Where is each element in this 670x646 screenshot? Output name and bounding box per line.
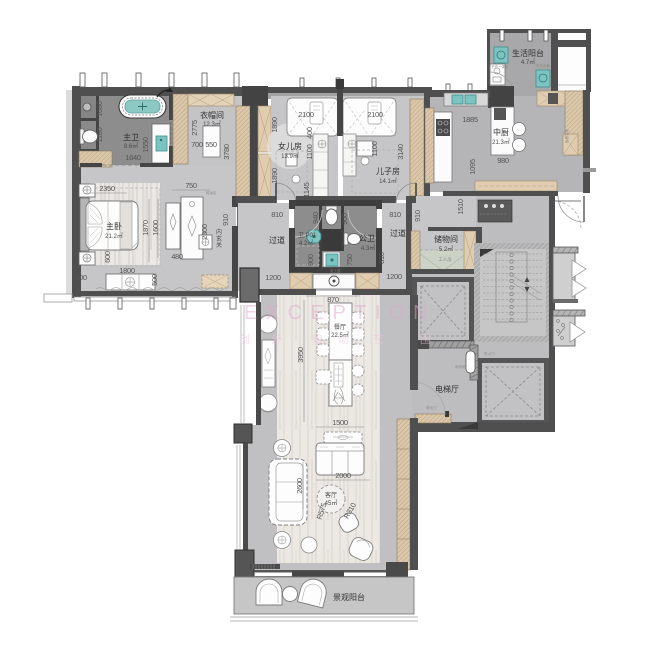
svg-text:2775: 2775 [190, 120, 199, 136]
svg-text:1890: 1890 [270, 168, 279, 184]
svg-text:儿子房: 儿子房 [376, 166, 400, 176]
svg-text:过道: 过道 [269, 235, 285, 245]
svg-text:810: 810 [271, 210, 283, 219]
svg-text:900: 900 [340, 213, 349, 225]
svg-text:4.7㎡: 4.7㎡ [521, 58, 535, 66]
svg-text:关: 关 [216, 241, 222, 249]
svg-text:810: 810 [377, 252, 386, 264]
svg-text:1200: 1200 [386, 272, 402, 281]
svg-text:生活阳台: 生活阳台 [512, 48, 544, 58]
svg-text:1640: 1640 [125, 153, 141, 162]
svg-text:980: 980 [497, 156, 509, 165]
svg-text:480: 480 [171, 252, 183, 261]
svg-text:创: 创 [239, 333, 250, 346]
svg-text:景观阳台: 景观阳台 [333, 592, 365, 602]
svg-text:1100: 1100 [370, 141, 379, 156]
svg-text:琅: 琅 [312, 332, 323, 346]
svg-text:干衣一体机: 干衣一体机 [491, 64, 509, 69]
svg-text:艺: 艺 [373, 333, 384, 346]
svg-text:衣帽间: 衣帽间 [200, 110, 224, 120]
svg-text:1145: 1145 [302, 182, 311, 197]
svg-text:1600: 1600 [151, 220, 160, 236]
svg-text:870: 870 [327, 295, 339, 304]
svg-text:14.1㎡: 14.1㎡ [379, 177, 397, 185]
svg-text:2600: 2600 [295, 478, 304, 494]
svg-text:主卧: 主卧 [106, 221, 122, 231]
svg-text:500: 500 [75, 273, 87, 282]
svg-text:公卫: 公卫 [359, 234, 375, 243]
svg-text:600: 600 [103, 251, 112, 263]
svg-text:2100: 2100 [298, 110, 314, 119]
svg-text:1100: 1100 [305, 144, 314, 159]
svg-text:1885: 1885 [462, 115, 478, 124]
svg-text:550: 550 [205, 140, 217, 149]
svg-text:1800: 1800 [119, 266, 135, 275]
svg-text:940: 940 [311, 212, 320, 224]
svg-text:过道: 过道 [390, 228, 406, 238]
svg-text:防火门: 防火门 [484, 351, 495, 356]
svg-text:400: 400 [305, 127, 314, 139]
svg-text:2350: 2350 [99, 184, 115, 193]
svg-text:动: 动 [338, 333, 349, 346]
svg-text:单元门: 单元门 [426, 405, 437, 410]
svg-text:1095: 1095 [468, 159, 477, 175]
svg-text:2100: 2100 [367, 110, 383, 119]
svg-text:卫 P01: 卫 P01 [298, 232, 317, 239]
svg-text:电梯厅: 电梯厅 [435, 384, 459, 394]
svg-text:1890: 1890 [270, 117, 279, 133]
svg-text:500: 500 [150, 274, 159, 286]
svg-text:围: 围 [420, 333, 431, 346]
svg-text:3140: 3140 [396, 144, 405, 160]
svg-text:1080: 1080 [95, 101, 104, 117]
svg-text:21.2㎡: 21.2㎡ [105, 232, 123, 240]
svg-text:女儿房: 女儿房 [278, 141, 302, 151]
svg-text:1510: 1510 [456, 199, 465, 215]
svg-text:5.2㎡: 5.2㎡ [439, 245, 453, 253]
svg-text:客厅: 客厅 [325, 491, 337, 499]
svg-text:内: 内 [216, 228, 222, 236]
svg-text:梳妆区: 梳妆区 [206, 190, 217, 195]
svg-text:中厨: 中厨 [493, 127, 509, 137]
svg-text:2000: 2000 [335, 471, 351, 480]
svg-text:21.3㎡: 21.3㎡ [492, 138, 510, 146]
svg-text:餐厅: 餐厅 [334, 323, 346, 331]
svg-text:台上盆: 台上盆 [330, 268, 341, 273]
svg-text:电机房: 电机房 [455, 364, 466, 369]
svg-text:12.3㎡: 12.3㎡ [203, 120, 221, 128]
svg-text:3950: 3950 [296, 347, 305, 363]
svg-text:8.6㎡: 8.6㎡ [124, 142, 138, 150]
svg-text:1180: 1180 [95, 127, 104, 142]
svg-text:玄: 玄 [216, 235, 222, 243]
svg-text:1550: 1550 [141, 137, 150, 153]
svg-text:900: 900 [306, 254, 315, 266]
svg-text:4.3㎡: 4.3㎡ [361, 244, 375, 252]
svg-text:910: 910 [221, 214, 230, 226]
svg-text:储物间: 储物间 [434, 234, 458, 244]
svg-text:2300: 2300 [200, 224, 209, 240]
svg-text:700: 700 [191, 140, 203, 149]
svg-text:工人房: 工人房 [438, 256, 452, 263]
svg-text:电器高柜: 电器高柜 [564, 129, 569, 143]
svg-text:750: 750 [345, 254, 354, 266]
svg-text:4.2㎡: 4.2㎡ [299, 239, 313, 247]
svg-text:电热水器: 电热水器 [536, 63, 550, 68]
svg-text:EXCEPTION: EXCEPTION [244, 302, 436, 324]
svg-text:910: 910 [413, 210, 422, 222]
svg-text:1500: 1500 [332, 418, 348, 427]
svg-text:13.9㎡: 13.9㎡ [281, 152, 299, 160]
svg-text:主卫: 主卫 [123, 132, 139, 142]
svg-text:750: 750 [185, 181, 197, 190]
svg-text:1200: 1200 [265, 273, 281, 282]
svg-text:3780: 3780 [222, 144, 231, 160]
svg-text:810: 810 [389, 210, 401, 219]
svg-text:外: 外 [271, 333, 282, 346]
svg-text:1870: 1870 [141, 220, 150, 236]
